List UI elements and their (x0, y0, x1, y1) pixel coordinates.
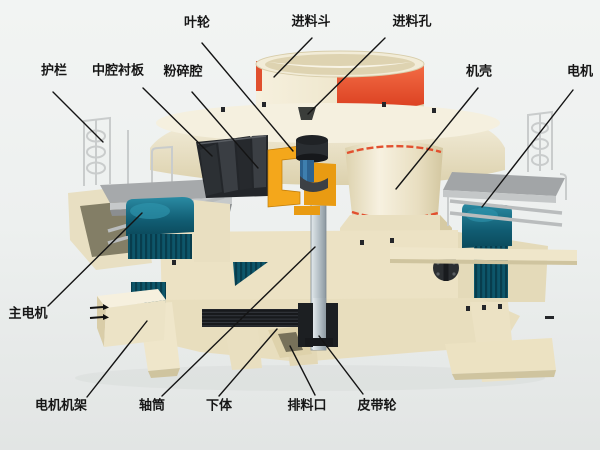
motor-frame-box (90, 289, 166, 347)
label-crushing-chamber: 粉碎腔 (163, 66, 202, 79)
label-lower-body: 下体 (206, 400, 232, 413)
label-casing: 机壳 (466, 66, 492, 79)
diagram-canvas: 叶轮 进料斗 进料孔 护栏 中腔衬板 粉碎腔 机壳 电机 主电机 电机机架 轴筒… (0, 0, 600, 450)
label-motor: 电机 (567, 66, 593, 79)
leader-line-guardrail (53, 92, 103, 142)
label-impeller: 叶轮 (184, 17, 210, 30)
main-motor-body (126, 197, 194, 259)
label-motor-frame: 电机机架 (35, 400, 87, 413)
label-feed-inlet: 进料孔 (392, 16, 431, 29)
label-middle-cavity-liner: 中腔衬板 (92, 65, 144, 78)
label-discharge-port: 排料口 (287, 400, 326, 413)
label-feed-hopper: 进料斗 (291, 16, 330, 29)
label-guardrail: 护栏 (41, 65, 67, 78)
label-shaft-sleeve: 轴筒 (139, 400, 165, 413)
label-belt-pulley: 皮带轮 (357, 400, 396, 413)
machine-illustration (0, 0, 600, 450)
label-main-motor: 主电机 (8, 308, 47, 321)
